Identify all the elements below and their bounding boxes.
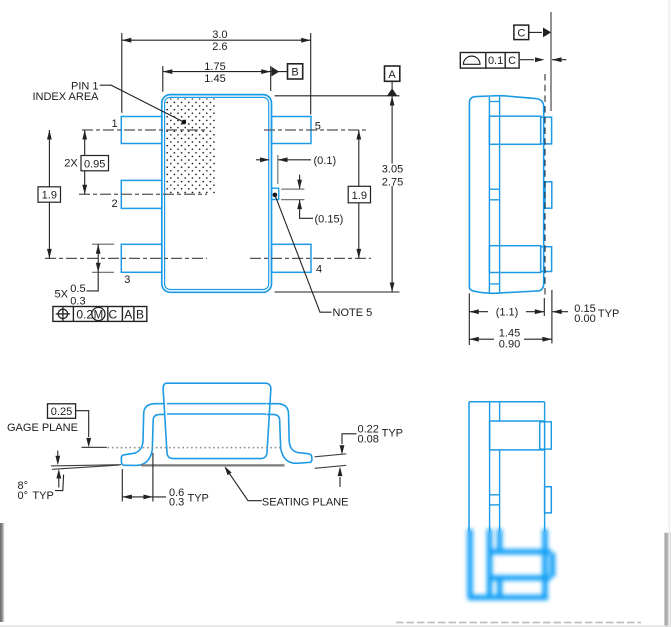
- svg-text:1: 1: [111, 118, 117, 130]
- svg-text:C: C: [108, 308, 117, 322]
- svg-text:0.3: 0.3: [169, 497, 184, 509]
- svg-text:1.75: 1.75: [204, 61, 225, 73]
- svg-text:1.45: 1.45: [204, 73, 225, 85]
- svg-text:4: 4: [316, 264, 322, 276]
- svg-text:5: 5: [315, 120, 321, 132]
- svg-text:1.9: 1.9: [352, 190, 367, 202]
- svg-text:B: B: [136, 308, 144, 322]
- svg-text:2.6: 2.6: [212, 41, 227, 53]
- svg-text:2: 2: [112, 198, 118, 210]
- svg-text:1.9: 1.9: [42, 190, 57, 202]
- svg-text:TYP: TYP: [188, 493, 209, 505]
- svg-text:NOTE 5: NOTE 5: [333, 307, 373, 319]
- svg-text:INDEX AREA: INDEX AREA: [32, 91, 99, 103]
- svg-text:SEATING PLANE: SEATING PLANE: [262, 496, 349, 508]
- svg-text:0.00: 0.00: [574, 313, 595, 325]
- svg-text:3.05: 3.05: [382, 164, 403, 176]
- svg-text:B: B: [291, 67, 298, 79]
- svg-text:0.3: 0.3: [70, 296, 85, 308]
- svg-text:2X: 2X: [64, 158, 78, 170]
- svg-text:M: M: [94, 309, 104, 321]
- svg-text:3.0: 3.0: [212, 29, 227, 41]
- svg-text:C: C: [517, 28, 525, 40]
- svg-text:0.1: 0.1: [488, 55, 503, 67]
- svg-text:0.90: 0.90: [499, 339, 520, 351]
- svg-text:(1.1): (1.1): [496, 307, 519, 319]
- svg-text:GAGE PLANE: GAGE PLANE: [7, 422, 78, 434]
- svg-text:(0.1): (0.1): [314, 155, 337, 167]
- svg-text:C: C: [508, 55, 516, 67]
- svg-text:TYP: TYP: [598, 308, 619, 320]
- svg-text:A: A: [388, 69, 396, 81]
- svg-text:2.75: 2.75: [382, 177, 403, 189]
- svg-text:A: A: [124, 308, 132, 322]
- svg-text:0.2: 0.2: [76, 308, 93, 322]
- svg-text:(0.15): (0.15): [315, 213, 344, 225]
- svg-text:3: 3: [124, 274, 130, 286]
- svg-text:0.08: 0.08: [358, 433, 379, 445]
- svg-text:TYP: TYP: [32, 490, 53, 502]
- svg-text:5X: 5X: [55, 289, 69, 301]
- svg-text:0.5: 0.5: [70, 283, 85, 295]
- svg-text:TYP: TYP: [382, 428, 403, 440]
- svg-text:0°: 0°: [18, 490, 29, 502]
- svg-text:0.25: 0.25: [51, 406, 72, 418]
- svg-text:0.95: 0.95: [84, 158, 105, 170]
